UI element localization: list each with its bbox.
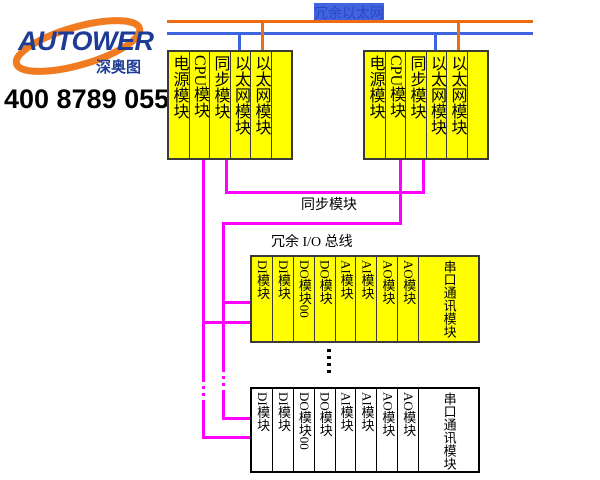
module-label: AO模块: [380, 392, 394, 437]
module-cell-serial: 串口通讯模块: [418, 257, 478, 341]
module-cell-di: DI模块: [252, 389, 272, 471]
module-cell-do: DO模块00: [293, 257, 314, 341]
module-cell-ao: AO模块: [376, 257, 397, 341]
ethernet-line-secondary: [167, 32, 533, 35]
module-label: 串口通讯模块: [441, 260, 455, 338]
module-cell-di: DI模块: [272, 389, 293, 471]
module-label: AI模块: [359, 392, 373, 432]
module-cell-di: DI模块: [252, 257, 272, 341]
module-cell-ethernet: 以太网模块: [250, 52, 271, 158]
sync-horizontal-link: [225, 191, 425, 194]
ethernet-drop-left-blue: [238, 35, 241, 51]
module-cell-empty: [467, 52, 488, 158]
module-label: AO模块: [380, 260, 394, 305]
module-cell-cpu: CPU模块: [385, 52, 406, 158]
module-cell-ao: AO模块: [397, 257, 418, 341]
sync-right-vertical: [422, 160, 425, 194]
brand-logo-text: AUTOWER: [18, 26, 154, 57]
module-label: DI模块: [276, 260, 290, 300]
ethernet-line-primary: [167, 20, 533, 23]
cpu-bus-left-dotted: [202, 379, 205, 401]
module-cell-ao: AO模块: [397, 389, 418, 471]
io-bus-vertical-lower: [222, 392, 225, 420]
diagram-canvas: AUTOWER 深奥图 400 8789 055 冗余以太网 同步模块 冗余 I…: [0, 0, 600, 480]
io-rack-top-stub-b: [202, 321, 250, 324]
module-label: DI模块: [255, 260, 269, 300]
module-cell-serial: 串口通讯模块: [418, 389, 478, 471]
module-label: DI模块: [276, 392, 290, 432]
module-label: 串口通讯模块: [441, 392, 455, 470]
module-cell-sync: 同步模块: [209, 52, 230, 158]
module-label: 电源模块: [170, 55, 188, 119]
io-bus-label: 冗余 I/O 总线: [271, 231, 353, 251]
module-label: CPU模块: [190, 55, 208, 118]
continuation-ellipsis: [327, 349, 331, 375]
module-label: DO模块: [317, 260, 331, 305]
module-cell-ai: AI模块: [355, 389, 376, 471]
module-label: 同步模块: [407, 55, 425, 119]
cpu-bus-right-vertical: [399, 160, 402, 225]
module-label: DI模块: [255, 392, 269, 432]
module-label: AI模块: [338, 260, 352, 300]
module-label: DO模块: [317, 392, 331, 437]
cpu-bus-left-vertical-lower: [202, 400, 205, 439]
phone-number: 400 8789 055: [4, 84, 169, 115]
ethernet-drop-right-orange: [457, 23, 460, 51]
module-cell-sync: 同步模块: [405, 52, 426, 158]
module-cell-ai: AI模块: [335, 389, 356, 471]
module-cell-empty: [271, 52, 292, 158]
cpu-bus-left-vertical: [202, 160, 205, 379]
module-label: 以太网模块: [252, 55, 270, 135]
ethernet-drop-right-blue: [434, 35, 437, 51]
ethernet-drop-left-orange: [261, 23, 264, 51]
module-label: AO模块: [401, 392, 415, 437]
module-label: AI模块: [359, 260, 373, 300]
module-cell-di: DI模块: [272, 257, 293, 341]
module-label: AI模块: [338, 392, 352, 432]
module-cell-do: DO模块: [314, 257, 335, 341]
module-label: 电源模块: [366, 55, 384, 119]
io-rack-bottom-stub-a: [222, 417, 250, 420]
module-cell-ao: AO模块: [376, 389, 397, 471]
sync-link-label: 同步模块: [301, 194, 357, 214]
io-rack-top: DI模块 DI模块 DO模块00 DO模块 AI模块 AI模块 AO模块 AO模…: [250, 255, 480, 343]
module-cell-cpu: CPU模块: [189, 52, 210, 158]
io-bus-horizontal: [222, 222, 402, 225]
controller-rack-right: 电源模块 CPU模块 同步模块 以太网模块 以太网模块: [363, 50, 489, 160]
module-cell-power: 电源模块: [365, 52, 385, 158]
module-cell-ai: AI模块: [335, 257, 356, 341]
module-label: 以太网模块: [448, 55, 466, 135]
io-bus-vertical: [222, 222, 225, 369]
sync-left-vertical: [225, 160, 228, 194]
module-cell-ethernet: 以太网模块: [426, 52, 447, 158]
module-label: DO模块00: [297, 392, 311, 450]
module-cell-ai: AI模块: [355, 257, 376, 341]
brand-chinese-name: 深奥图: [96, 56, 141, 77]
controller-rack-left: 电源模块 CPU模块 同步模块 以太网模块 以太网模块: [167, 50, 293, 160]
io-rack-top-stub-a: [222, 301, 250, 304]
module-cell-do: DO模块00: [293, 389, 314, 471]
module-label: 以太网模块: [427, 55, 445, 135]
module-label: 同步模块: [211, 55, 229, 119]
module-cell-ethernet: 以太网模块: [230, 52, 251, 158]
module-label: AO模块: [401, 260, 415, 305]
io-bus-vertical-dotted: [222, 369, 225, 392]
io-rack-bottom-stub-b: [202, 436, 250, 439]
module-label: 以太网模块: [231, 55, 249, 135]
module-label: CPU模块: [386, 55, 404, 118]
module-label: DO模块00: [297, 260, 311, 318]
module-cell-power: 电源模块: [169, 52, 189, 158]
module-cell-do: DO模块: [314, 389, 335, 471]
io-rack-bottom: DI模块 DI模块 DO模块00 DO模块 AI模块 AI模块 AO模块 AO模…: [250, 387, 480, 473]
module-cell-ethernet: 以太网模块: [446, 52, 467, 158]
